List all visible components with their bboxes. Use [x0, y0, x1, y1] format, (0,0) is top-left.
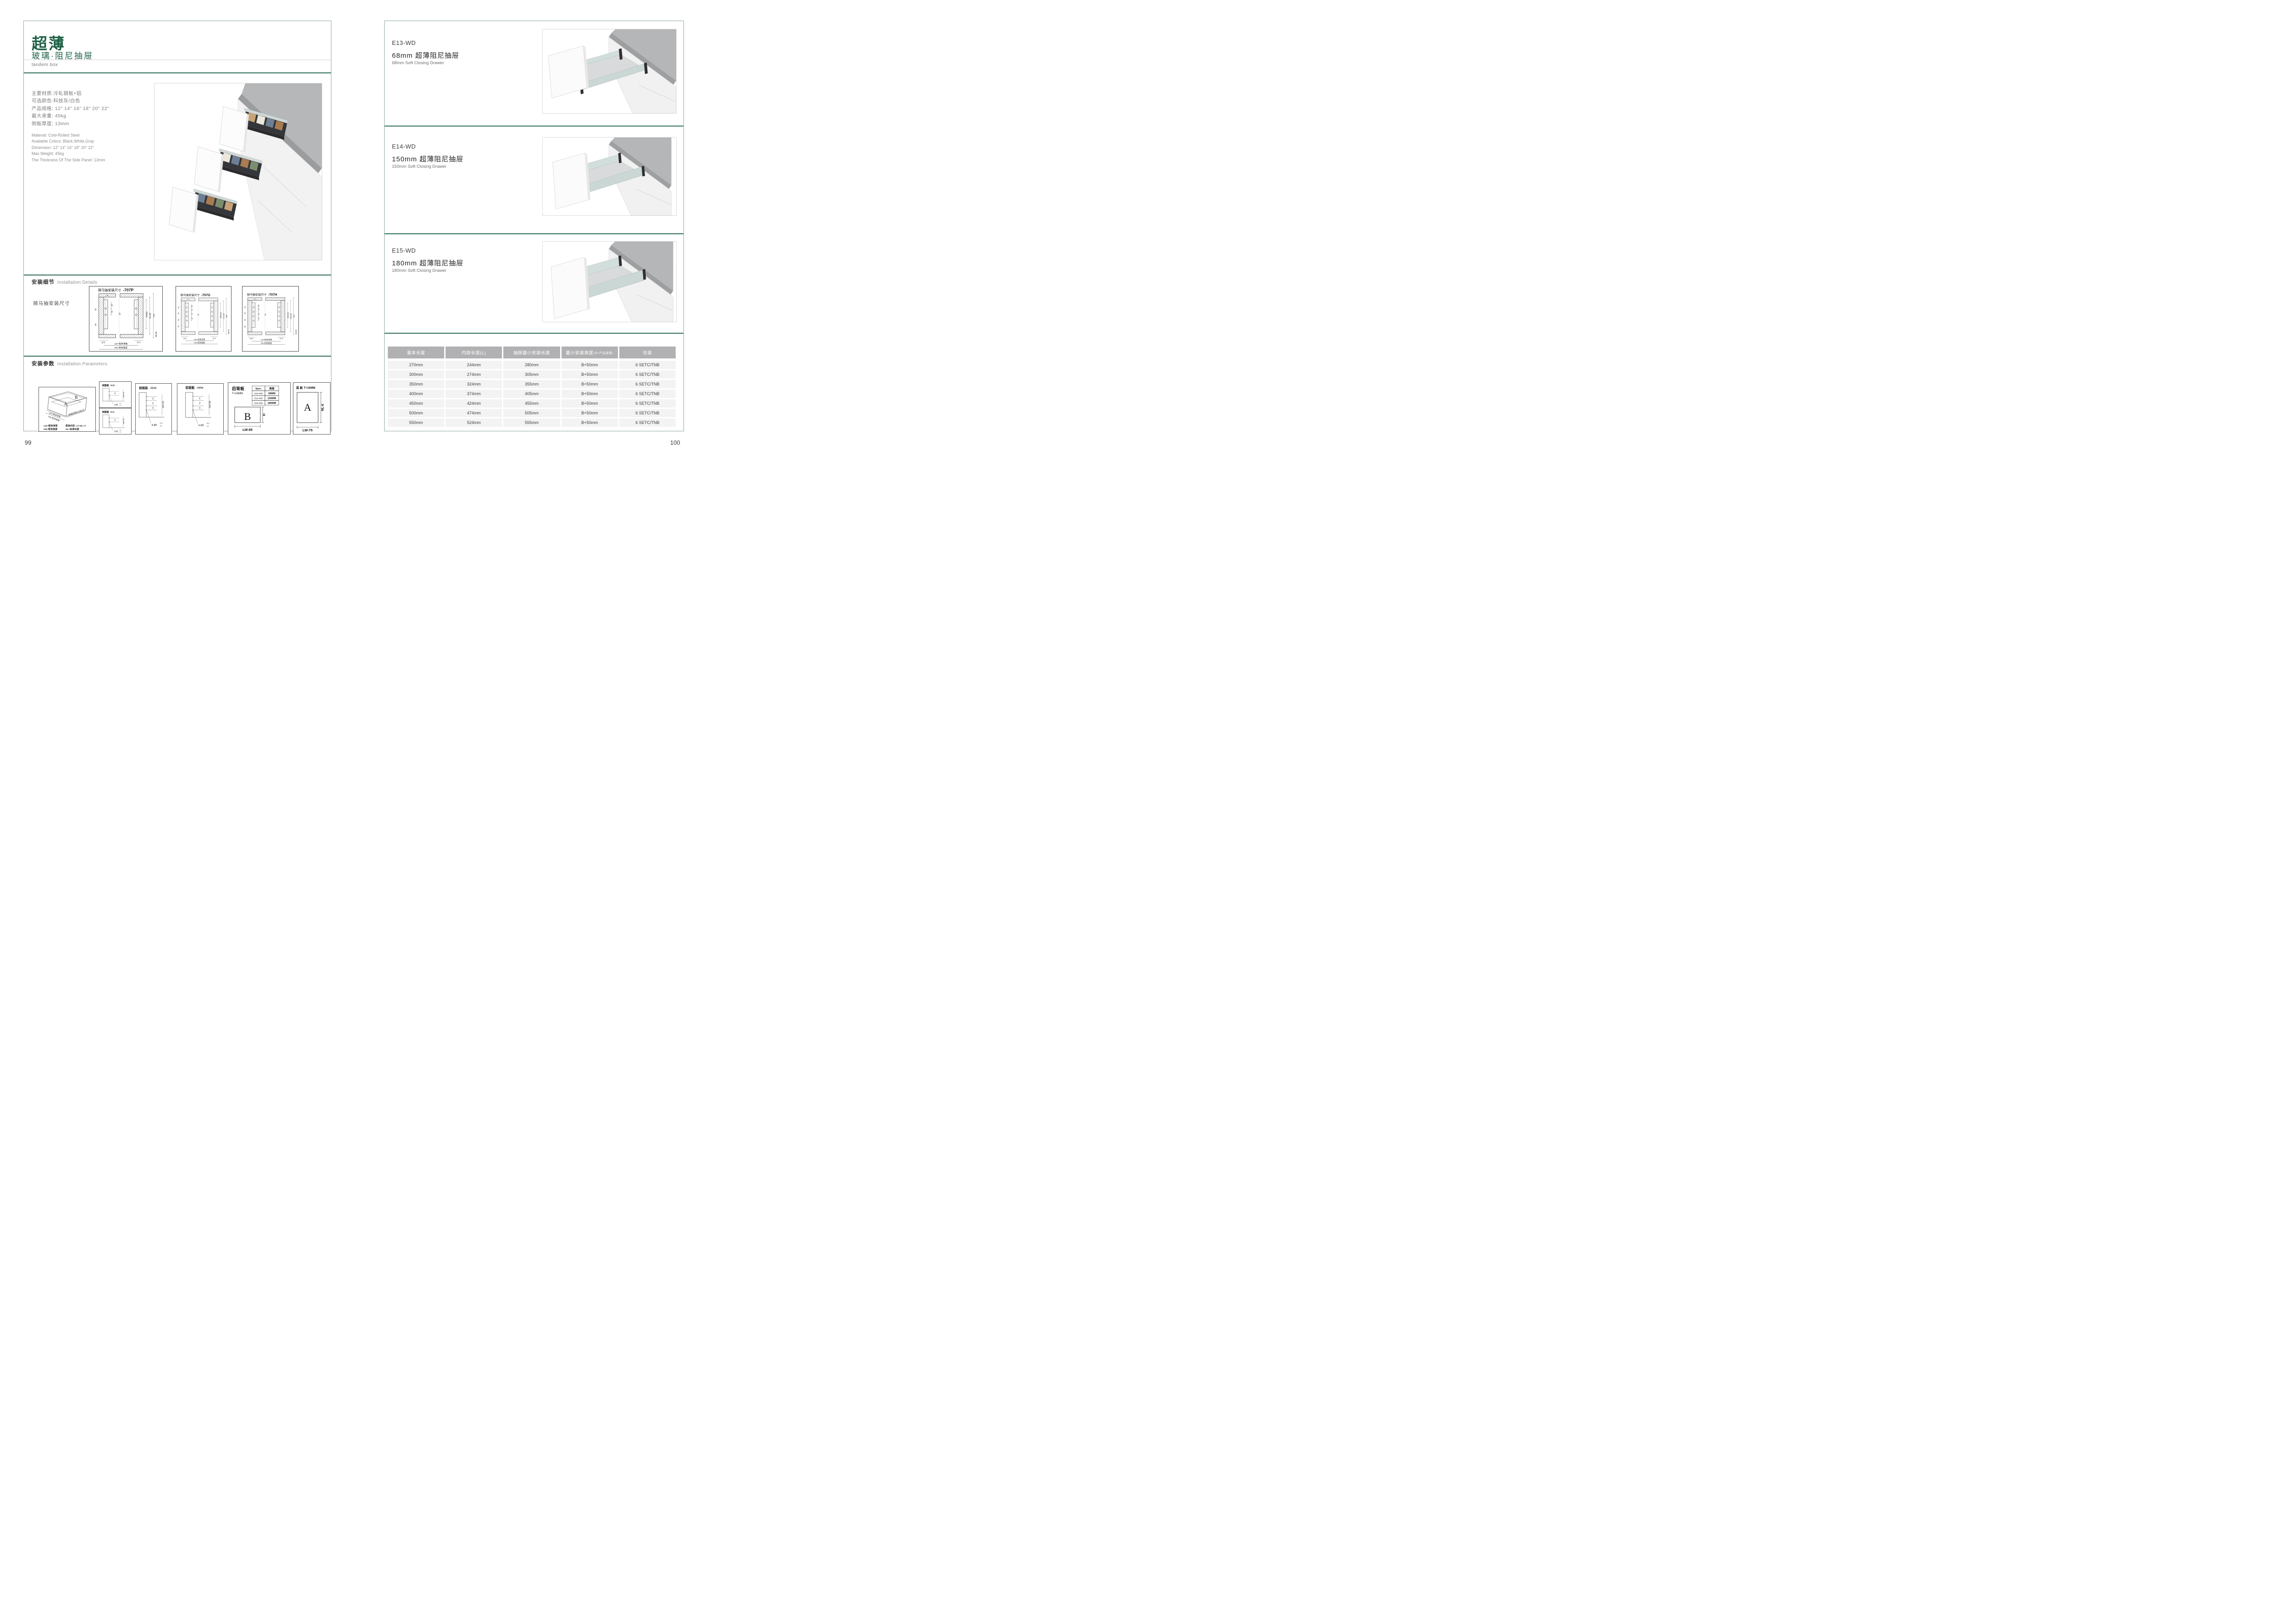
svg-text:32: 32 [198, 407, 201, 409]
svg-text:LW=柜体净宽: LW=柜体净宽 [44, 424, 57, 427]
table-cell: 6 SETC/TNB [619, 361, 676, 369]
svg-text:+0.2: +0.2 [119, 403, 121, 404]
svg-text:16.5: 16.5 [101, 341, 105, 344]
divider-details [24, 275, 331, 275]
svg-text:16.5: 16.5 [250, 338, 253, 340]
table-cell: B+50mm [562, 409, 618, 417]
section-name-en-e14: 150mm Soft Closing Drawer [392, 164, 446, 169]
spec-line-cn: 可选颜色:科技灰/白色 [32, 97, 151, 105]
svg-text:KB=柜体宽度: KB=柜体宽度 [44, 428, 58, 431]
section-name-en-e13: 68mm Soft Closing Drawer [392, 61, 444, 66]
spec-line-en: Dimension: 12" 14" 16" 18" 20" 22" [32, 145, 155, 151]
svg-text:NL=标准长度: NL=标准长度 [66, 428, 80, 431]
svg-text:前面板-707G: 前面板-707G [139, 386, 156, 390]
svg-text:LW=柜体净宽: LW=柜体净宽 [114, 342, 127, 346]
svg-text:底 板 T=16MM: 底 板 T=16MM [296, 385, 315, 390]
svg-text:Min192: Min192 [287, 312, 289, 318]
svg-text:54: 54 [177, 325, 179, 327]
svg-text:前面板-707L: 前面板-707L [102, 410, 115, 413]
svg-text:NL-6: NL-6 [321, 404, 325, 411]
table-cell: 270mm [388, 361, 444, 369]
table-cell: 274mm [446, 370, 502, 379]
spec-line-en: Available Colors: Black,White,Gray [32, 138, 155, 144]
table-cell: B+50mm [562, 399, 618, 407]
base-panel-diagram: 底 板 T=16MMANL-6LW-75 [293, 382, 331, 435]
svg-text:201.50: 201.50 [290, 313, 292, 319]
table-cell: 500mm [388, 409, 444, 417]
svg-text:91.50: 91.50 [149, 313, 152, 318]
table-cell: 305mm [503, 370, 560, 379]
svg-text:min 54: min 54 [162, 401, 165, 408]
svg-text:前面板-707H: 前面板-707H [186, 385, 203, 390]
table-header-cell: 基本长度 [388, 347, 444, 358]
table-cell: 300mm [388, 370, 444, 379]
section-name-en-e15: 180mm Soft Closing Drawer [392, 268, 446, 273]
svg-text:骑马抽安装尺寸-707P: 骑马抽安装尺寸-707P [98, 288, 134, 292]
svg-text:4-Ø2: 4-Ø2 [198, 424, 204, 427]
svg-text:32: 32 [152, 407, 154, 409]
svg-text:+0.2: +0.2 [206, 423, 209, 424]
install-params-cn: 安装参数 [32, 361, 55, 367]
svg-text:Min36: Min36 [228, 330, 230, 334]
svg-text:37.5: 37.5 [213, 338, 216, 340]
table-cell: 455mm [503, 399, 560, 407]
svg-text:37.5: 37.5 [137, 341, 141, 344]
header-suffix: (B=产品高度) [594, 350, 613, 355]
svg-text:B: B [75, 395, 77, 400]
table-cell: B+50mm [562, 370, 618, 379]
front-panel-707h: 前面板-707H326432min 544-Ø2+0.2-0.1 [177, 383, 224, 435]
svg-text:T=16MM: T=16MM [232, 392, 243, 395]
spec-line-en: Material: Cold-Rolled Steel [32, 132, 155, 138]
table-cell: 374mm [446, 390, 502, 398]
divider-e13-e14 [385, 126, 683, 127]
svg-text:LW-75: LW-75 [303, 428, 313, 432]
svg-text:20: 20 [191, 305, 193, 307]
svg-text:Min162: Min162 [220, 312, 222, 318]
cad-707p: 骑马抽安装尺寸-707P9203216Min8291.50113325416.5… [89, 286, 163, 352]
title-hairline [24, 60, 331, 60]
install-details-label: 安装细节Installation Details [32, 278, 97, 286]
svg-text:LW-85: LW-85 [242, 428, 253, 432]
spec-line-en: Max Weight: 45kg [32, 151, 155, 157]
svg-text:E13-WD: E13-WD [254, 392, 263, 395]
divider-e15-table [385, 333, 683, 334]
table-cell: 6 SETC/TNB [619, 409, 676, 417]
divider-params [24, 356, 331, 357]
table-header-cell: 抽屉最小安装长度 [503, 347, 560, 358]
front-panel-707g: 前面板-707G326432min 544-Ø2+0.2-0.1 [135, 383, 172, 435]
svg-text:32: 32 [198, 397, 201, 399]
svg-text:-0.1: -0.1 [206, 425, 209, 427]
page-number-left: 99 [25, 439, 31, 446]
spec-line-cn: 主要材质:冷轧钢板+铝 [32, 90, 151, 97]
svg-text:骑马抽安装尺寸-707G: 骑马抽安装尺寸-707G [181, 293, 211, 297]
svg-text:16: 16 [264, 314, 266, 316]
table-header-cell: 包装 [619, 347, 676, 358]
svg-text:-0.1: -0.1 [119, 406, 121, 407]
table-cell: 550mm [388, 418, 444, 427]
svg-text:KB=柜体宽度: KB=柜体宽度 [115, 346, 128, 349]
table-cell: 6 SETC/TNB [619, 390, 676, 398]
svg-text:+0.2: +0.2 [160, 423, 163, 424]
svg-text:32: 32 [258, 313, 260, 315]
install-details-en: Installation Details [57, 280, 97, 285]
product-photo-drawer-stack [154, 83, 322, 260]
spec-line-cn: 侧板厚度; 13mm [32, 120, 151, 127]
svg-text:A: A [64, 402, 67, 407]
table-cell: 400mm [388, 390, 444, 398]
table-row: 300mm274mm305mmB+50mm6 SETC/TNB [388, 370, 676, 379]
svg-text:20: 20 [111, 304, 113, 306]
back-panel-diagram: 后背板T=16MMSpec.高度E13-WD68MME14-WD150MME15… [228, 382, 291, 435]
svg-text:9: 9 [254, 298, 255, 300]
table-cell: B+50mm [562, 361, 618, 369]
svg-text:E14-WD: E14-WD [254, 397, 263, 400]
spec-table: 基本长度内部长度(L)抽屉最小安装长度最小安装高度(B=产品高度)包装270mm… [388, 347, 676, 428]
table-cell: B+50mm [562, 390, 618, 398]
svg-text:E15-WD: E15-WD [254, 402, 263, 405]
table-cell: B+50mm [562, 418, 618, 427]
section-name-cn-e14: 150mm 超薄阻尼抽屉 [392, 154, 463, 164]
install-details-sublabel: 骑马抽安装尺寸 [33, 300, 70, 307]
svg-text:32: 32 [244, 306, 246, 308]
page-right: E13-WD 68mm 超薄阻尼抽屉 68mm Soft Closing Dra… [384, 21, 684, 431]
svg-text:150MM: 150MM [268, 397, 276, 400]
svg-text:柜体内空LT=NL+3: 柜体内空LT=NL+3 [68, 408, 85, 416]
svg-text:min 54: min 54 [209, 401, 212, 408]
svg-text:2-Ø2: 2-Ø2 [114, 403, 119, 406]
divider-e14-e15 [385, 233, 683, 234]
svg-text:32: 32 [114, 392, 116, 394]
table-row: 450mm424mm455mmB+50mm6 SETC/TNB [388, 399, 676, 407]
svg-text:后背板: 后背板 [232, 386, 245, 391]
svg-text:32: 32 [177, 319, 179, 321]
divider-title [24, 72, 331, 73]
spec-line-cn: 产品规格: 12" 14" 16" 18" 20" 22" [32, 105, 151, 112]
table-cell: 6 SETC/TNB [619, 380, 676, 388]
svg-text:B: B [244, 411, 251, 422]
svg-text:64: 64 [152, 402, 154, 404]
drawer-stack-illustration [154, 83, 322, 260]
install-params-label: 安装参数Installation Parameters [32, 359, 107, 368]
svg-text:32: 32 [191, 318, 193, 319]
svg-text:32: 32 [191, 309, 193, 311]
svg-text:高度: 高度 [269, 387, 275, 391]
table-cell: 555mm [503, 418, 560, 427]
svg-text:171.50: 171.50 [222, 313, 225, 319]
page-number-right: 100 [670, 439, 680, 446]
svg-text:113: 113 [153, 314, 155, 318]
subtitle-en: tandem box [32, 62, 58, 67]
page-left: 超薄 玻璃·阻尼抽屉 tandem box 主要材质:冷轧钢板+铝可选颜色:科技… [23, 21, 331, 431]
table-cell: 355mm [503, 380, 560, 388]
svg-text:195: 195 [226, 314, 228, 318]
table-cell: 324mm [446, 380, 502, 388]
table-cell: 350mm [388, 380, 444, 388]
table-row: 350mm324mm355mmB+50mm6 SETC/TNB [388, 380, 676, 388]
svg-text:前面板-707P: 前面板-707P [102, 384, 115, 387]
table-row: 500mm474mm505mmB+50mm6 SETC/TNB [388, 409, 676, 417]
section-name-cn-e15: 180mm 超薄阻尼抽屉 [392, 258, 463, 268]
svg-text:32: 32 [152, 397, 154, 399]
svg-text:37.5: 37.5 [280, 338, 283, 340]
table-cell: 450mm [388, 399, 444, 407]
svg-text:2-Ø2: 2-Ø2 [114, 430, 119, 432]
front-panel-707p: 前面板-707P32min 542-Ø2+0.2-0.1 [99, 381, 132, 408]
svg-text:16.5: 16.5 [183, 338, 187, 340]
table-cell: B+50mm [562, 380, 618, 388]
svg-text:32: 32 [191, 313, 193, 315]
section-code-e14: E14-WD [392, 143, 416, 150]
section-code-e13: E13-WD [392, 39, 416, 46]
svg-text:4-Ø2: 4-Ø2 [152, 424, 157, 427]
svg-text:32: 32 [258, 318, 260, 319]
table-cell: 505mm [503, 409, 560, 417]
table-cell: 424mm [446, 399, 502, 407]
svg-text:16: 16 [197, 314, 199, 316]
svg-text:Min36: Min36 [155, 331, 157, 337]
cad-707g: 骑马抽安装尺寸-707G92032323216Min162171.5019532… [176, 286, 231, 352]
specs-cn: 主要材质:冷轧钢板+铝可选颜色:科技灰/白色产品规格: 12" 14" 16" … [32, 90, 151, 127]
table-cell: 6 SETC/TNB [619, 418, 676, 427]
svg-text:LW=柜体净宽: LW=柜体净宽 [261, 338, 272, 341]
install-details-cn: 安装细节 [32, 280, 55, 285]
svg-text:225: 225 [293, 314, 295, 318]
svg-text:64: 64 [198, 402, 201, 404]
svg-text:A: A [304, 402, 311, 413]
svg-text:68MM: 68MM [268, 392, 275, 395]
table-cell: 6 SETC/TNB [619, 399, 676, 407]
table-row: 270mm244mm280mmB+50mm6 SETC/TNB [388, 361, 676, 369]
catalog-spread: 超薄 玻璃·阻尼抽屉 tandem box 主要材质:冷轧钢板+铝可选颜色:科技… [0, 0, 707, 461]
spec-line-en: The Thickness Of The Side Panel: 13mm [32, 157, 155, 163]
spec-line-cn: 最大承重: 45kg [32, 112, 151, 120]
section-code-e15: E15-WD [392, 247, 416, 254]
table-header-row: 基本长度内部长度(L)抽屉最小安装长度最小安装高度(B=产品高度)包装 [388, 347, 676, 358]
svg-text:柜体内空: LT=NL+3: 柜体内空: LT=NL+3 [65, 424, 86, 427]
svg-text:20: 20 [258, 305, 260, 307]
svg-text:骑马抽安装尺寸-707H: 骑马抽安装尺寸-707H [247, 292, 277, 297]
svg-text:64: 64 [177, 313, 179, 314]
section-name-cn-e13: 68mm 超薄阻尼抽屉 [392, 50, 459, 60]
install-params-en: Installation Parameters [57, 362, 107, 367]
front-panel-707l: 前面板-707L32min 542-Ø2+0.2-0.1 [99, 408, 132, 435]
svg-text:Min36: Min36 [295, 330, 297, 334]
product-photo-e13 [542, 29, 677, 114]
svg-text:KB=柜体宽度: KB=柜体宽度 [194, 341, 205, 344]
svg-text:32: 32 [94, 308, 97, 310]
svg-text:-0.1: -0.1 [119, 432, 121, 433]
svg-text:64: 64 [244, 312, 246, 314]
svg-text:54: 54 [94, 323, 97, 325]
table-header-cell: 内部长度(L) [446, 347, 502, 358]
product-photo-e14 [542, 137, 677, 216]
table-cell: 280mm [503, 361, 560, 369]
product-photo-e15 [542, 241, 677, 322]
table-header-cell: 最小安装高度(B=产品高度) [562, 347, 618, 358]
svg-text:32: 32 [111, 310, 113, 313]
svg-text:KB=柜体宽度: KB=柜体宽度 [261, 341, 272, 344]
table-row: 400mm374mm405mmB+50mm6 SETC/TNB [388, 390, 676, 398]
svg-text:9: 9 [187, 299, 188, 301]
table-cell: 474mm [446, 409, 502, 417]
svg-text:32: 32 [114, 419, 116, 421]
svg-text:LW=柜体净宽: LW=柜体净宽 [194, 338, 205, 341]
svg-text:54: 54 [244, 326, 246, 328]
svg-text:32: 32 [258, 308, 260, 310]
svg-text:min 54: min 54 [123, 418, 125, 424]
table-cell: 524mm [446, 418, 502, 427]
specs-en: Material: Cold-Rolled SteelAvailable Col… [32, 132, 155, 163]
svg-text:32: 32 [244, 319, 246, 321]
table-cell: 405mm [503, 390, 560, 398]
svg-text:Spec.: Spec. [255, 388, 262, 391]
svg-text:16: 16 [118, 313, 121, 315]
cad-707h: 骑马抽安装尺寸-707H92032323216Min192201.5022532… [242, 286, 299, 352]
iso-cabinet-diagram: ABLW=柜体净宽KB=柜体宽度柜体内空LT=NL+3LW=柜体净宽柜体内空: … [39, 387, 96, 432]
svg-text:-0.1: -0.1 [160, 425, 162, 427]
svg-text:180MM: 180MM [268, 402, 276, 405]
svg-text:32: 32 [177, 307, 179, 308]
svg-text:min 54: min 54 [123, 392, 125, 397]
svg-text:H: H [263, 413, 266, 416]
svg-text:Min82: Min82 [145, 311, 148, 317]
table-cell: 6 SETC/TNB [619, 370, 676, 379]
table-cell: 244mm [446, 361, 502, 369]
table-row: 550mm524mm555mmB+50mm6 SETC/TNB [388, 418, 676, 427]
svg-text:+0.2: +0.2 [119, 430, 121, 431]
